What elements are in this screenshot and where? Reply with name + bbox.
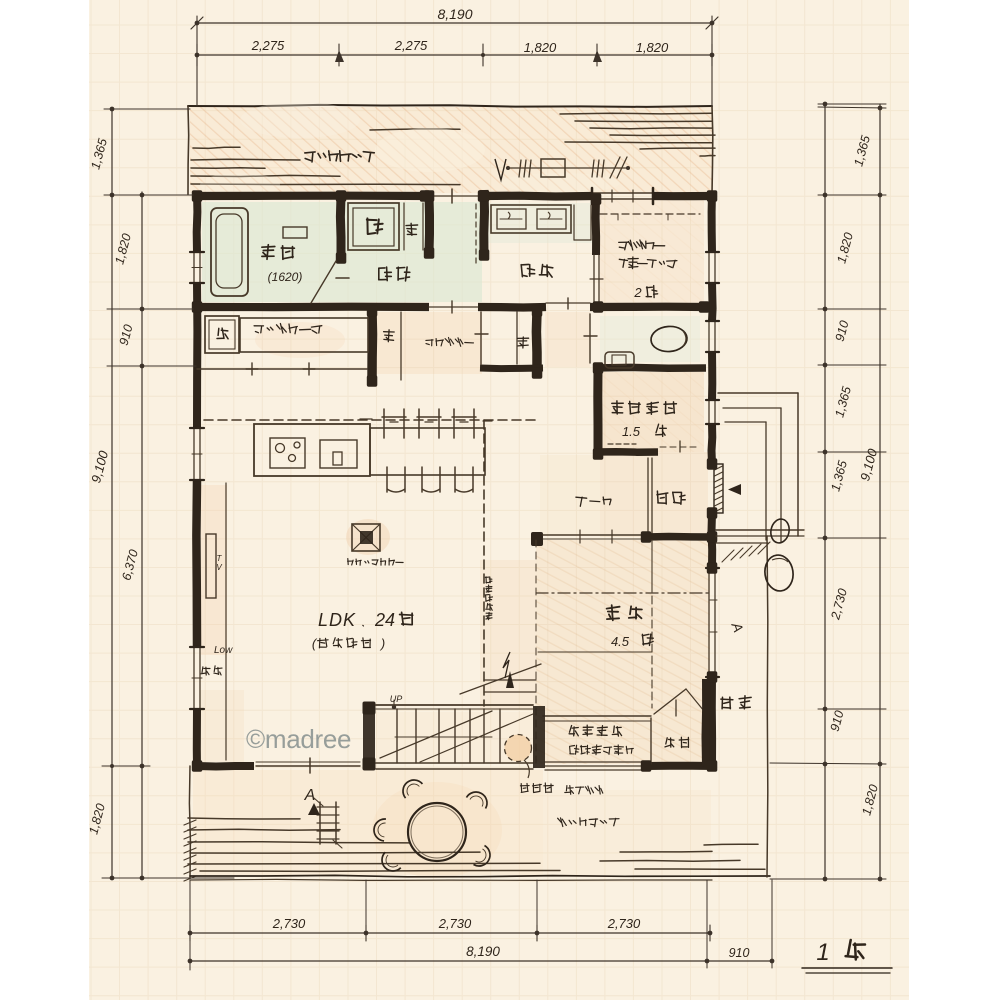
svg-text:2,275: 2,275 (394, 38, 428, 53)
svg-text:LDK: LDK (318, 610, 356, 630)
svg-text:1,820: 1,820 (636, 40, 669, 55)
svg-text:24: 24 (374, 610, 395, 630)
svg-text:©madree: ©madree (246, 724, 351, 754)
svg-text:4.5: 4.5 (611, 634, 630, 649)
svg-text:A: A (304, 787, 316, 804)
svg-text:Low: Low (214, 645, 233, 656)
svg-text:910: 910 (729, 946, 750, 960)
svg-text:V: V (216, 563, 222, 572)
svg-text:1,820: 1,820 (524, 40, 557, 55)
svg-text:2: 2 (633, 285, 642, 300)
svg-text:UP: UP (390, 694, 403, 704)
svg-text:(1620): (1620) (268, 270, 303, 284)
svg-text:1.5: 1.5 (622, 424, 641, 439)
svg-text:2,730: 2,730 (607, 916, 641, 931)
svg-text:1: 1 (816, 939, 829, 966)
svg-text:2,730: 2,730 (438, 916, 472, 931)
svg-text:2,275: 2,275 (251, 38, 285, 53)
svg-text:2,730: 2,730 (272, 916, 306, 931)
svg-text:8,190: 8,190 (437, 6, 472, 22)
svg-text:8,190: 8,190 (466, 944, 500, 959)
